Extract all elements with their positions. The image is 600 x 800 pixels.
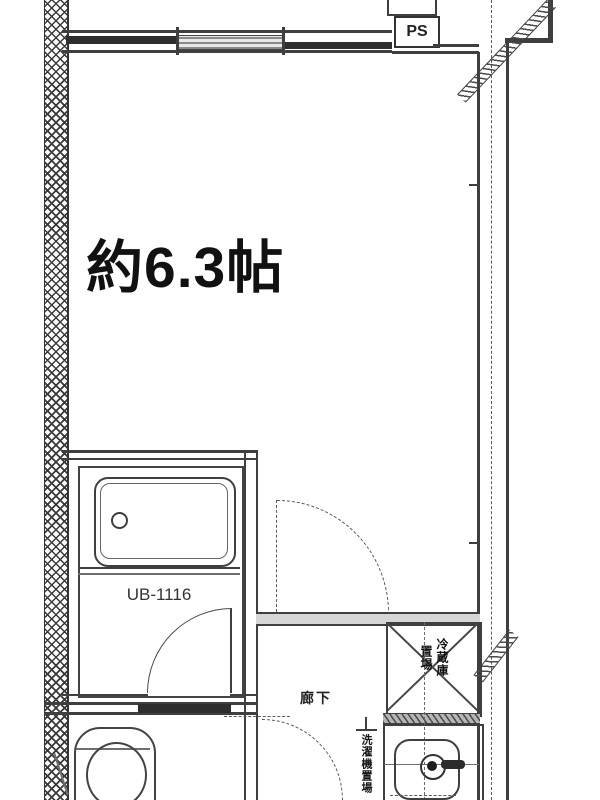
top-wall-outer-line — [62, 30, 392, 33]
right-wall-centerline — [491, 0, 492, 800]
refrigerator-label-column-left: 置場 — [418, 645, 435, 679]
bath-divider-line-1 — [78, 567, 240, 569]
top-wall-inner-line — [62, 50, 392, 53]
window-mullion-left — [176, 27, 179, 55]
window-mullion-right — [282, 27, 285, 55]
ps-label: PS — [406, 23, 427, 41]
top-wall-right-outer — [433, 44, 479, 47]
bath-divider-line-2 — [78, 573, 240, 575]
counter-hatched-band — [383, 713, 480, 724]
hallway-label: 廊下 — [300, 688, 332, 708]
window-sash-left — [66, 36, 178, 44]
right-wall-tick-lower — [469, 542, 478, 544]
hall-boundary-dashed — [224, 716, 290, 717]
bath-top-wall-outer — [62, 450, 258, 453]
bath-bottom-wall-left — [62, 694, 148, 696]
toilet-bowl — [86, 742, 147, 800]
right-wall-tick-upper — [469, 184, 478, 186]
window-sash-middle — [178, 35, 284, 50]
entrance-door-arc — [262, 719, 343, 800]
washbasin-front-dashed — [390, 795, 456, 796]
toilet-door-panel — [138, 704, 231, 713]
refrigerator-label-column-right: 冷蔵庫 — [434, 638, 451, 686]
bathtub-drain-icon — [111, 512, 128, 529]
ps-upper-box — [387, 0, 437, 16]
bath-right-wall-inner — [244, 450, 246, 800]
right-wall-outer-line — [506, 41, 509, 800]
door-stop-mark-horizontal — [356, 729, 377, 731]
exterior-wall-hatch — [44, 0, 69, 800]
laundry-space-label: 洗濯機置場 — [358, 734, 374, 800]
bath-model-label: UB-1116 — [78, 585, 240, 605]
top-wall-right-inner — [392, 51, 479, 54]
bath-top-wall-inner — [62, 458, 258, 461]
floor-plan: PS 約6.3帖 UB-1116 廊下 洗濯機置場 — [0, 0, 600, 800]
bath-bottom-wall-right — [230, 694, 258, 696]
room-door-arc — [277, 500, 389, 613]
room-size-label: 約6.3帖 — [86, 222, 284, 304]
window-sash-right — [284, 42, 392, 49]
faucet-center-icon — [427, 761, 437, 771]
faucet-lever-icon — [441, 760, 465, 769]
